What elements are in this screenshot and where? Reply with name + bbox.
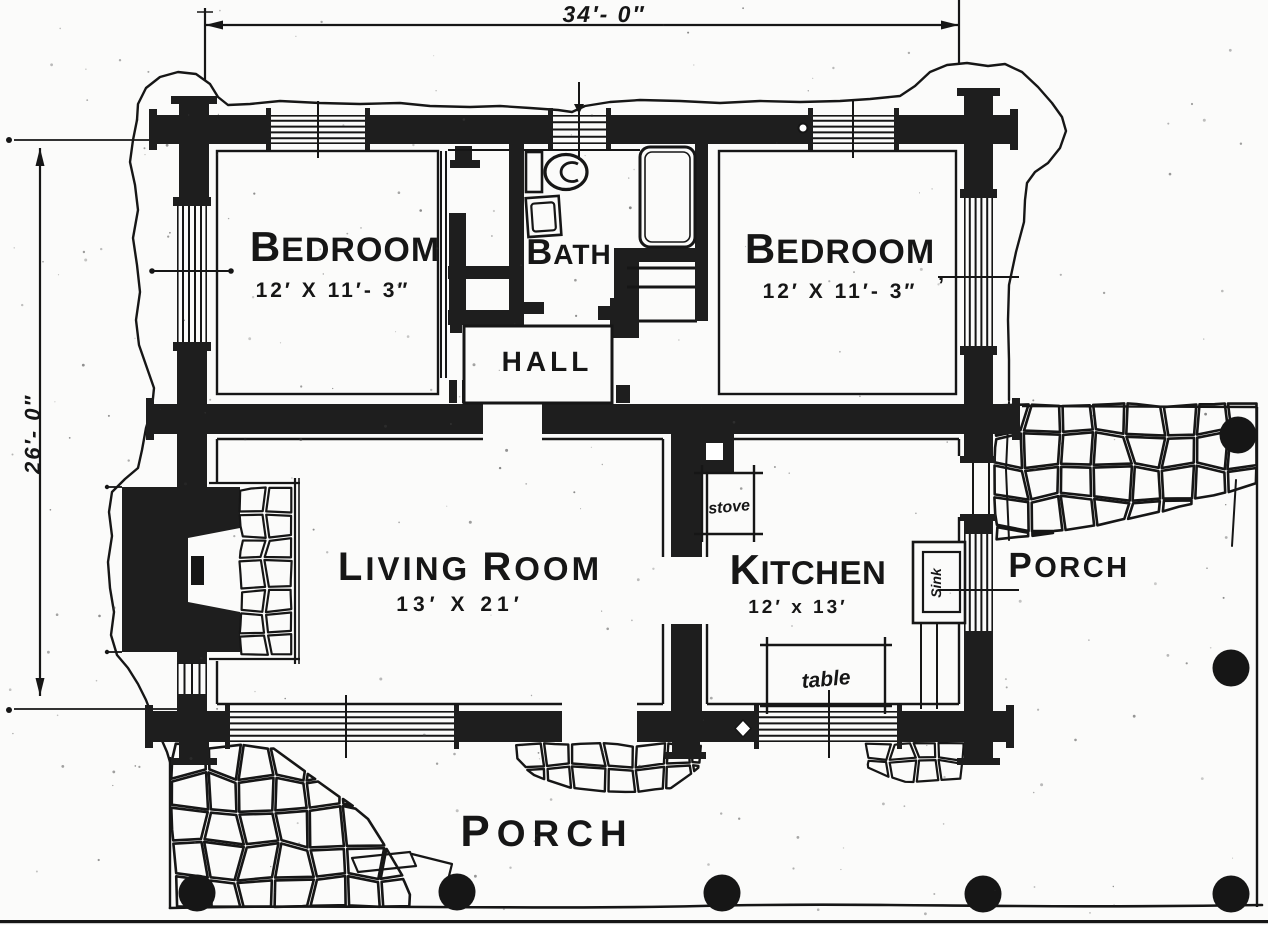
- svg-text:12′ x 13′: 12′ x 13′: [748, 597, 848, 618]
- svg-text:26′- 0″: 26′- 0″: [20, 394, 45, 475]
- svg-text:12′ X 11′- 3″: 12′ X 11′- 3″: [256, 279, 411, 302]
- svg-text:PORCH: PORCH: [1008, 546, 1129, 585]
- svg-text:BEDROOM: BEDROOM: [745, 225, 935, 272]
- svg-text:PORCH: PORCH: [460, 807, 633, 856]
- svg-text:34′- 0″: 34′- 0″: [563, 1, 646, 27]
- svg-text:stove: stove: [708, 497, 751, 518]
- svg-text:LIVING ROOM: LIVING ROOM: [338, 545, 602, 589]
- svg-text:,: ,: [938, 260, 944, 285]
- svg-text:KITCHEN: KITCHEN: [730, 546, 887, 593]
- svg-text:BEDROOM: BEDROOM: [250, 223, 440, 270]
- svg-text:12′ X 11′- 3″: 12′ X 11′- 3″: [763, 280, 918, 303]
- svg-text:table: table: [801, 666, 852, 693]
- svg-text:HALL: HALL: [502, 346, 593, 377]
- svg-text:Sink: Sink: [928, 567, 944, 598]
- svg-text:13′ X 21′: 13′ X 21′: [396, 593, 523, 616]
